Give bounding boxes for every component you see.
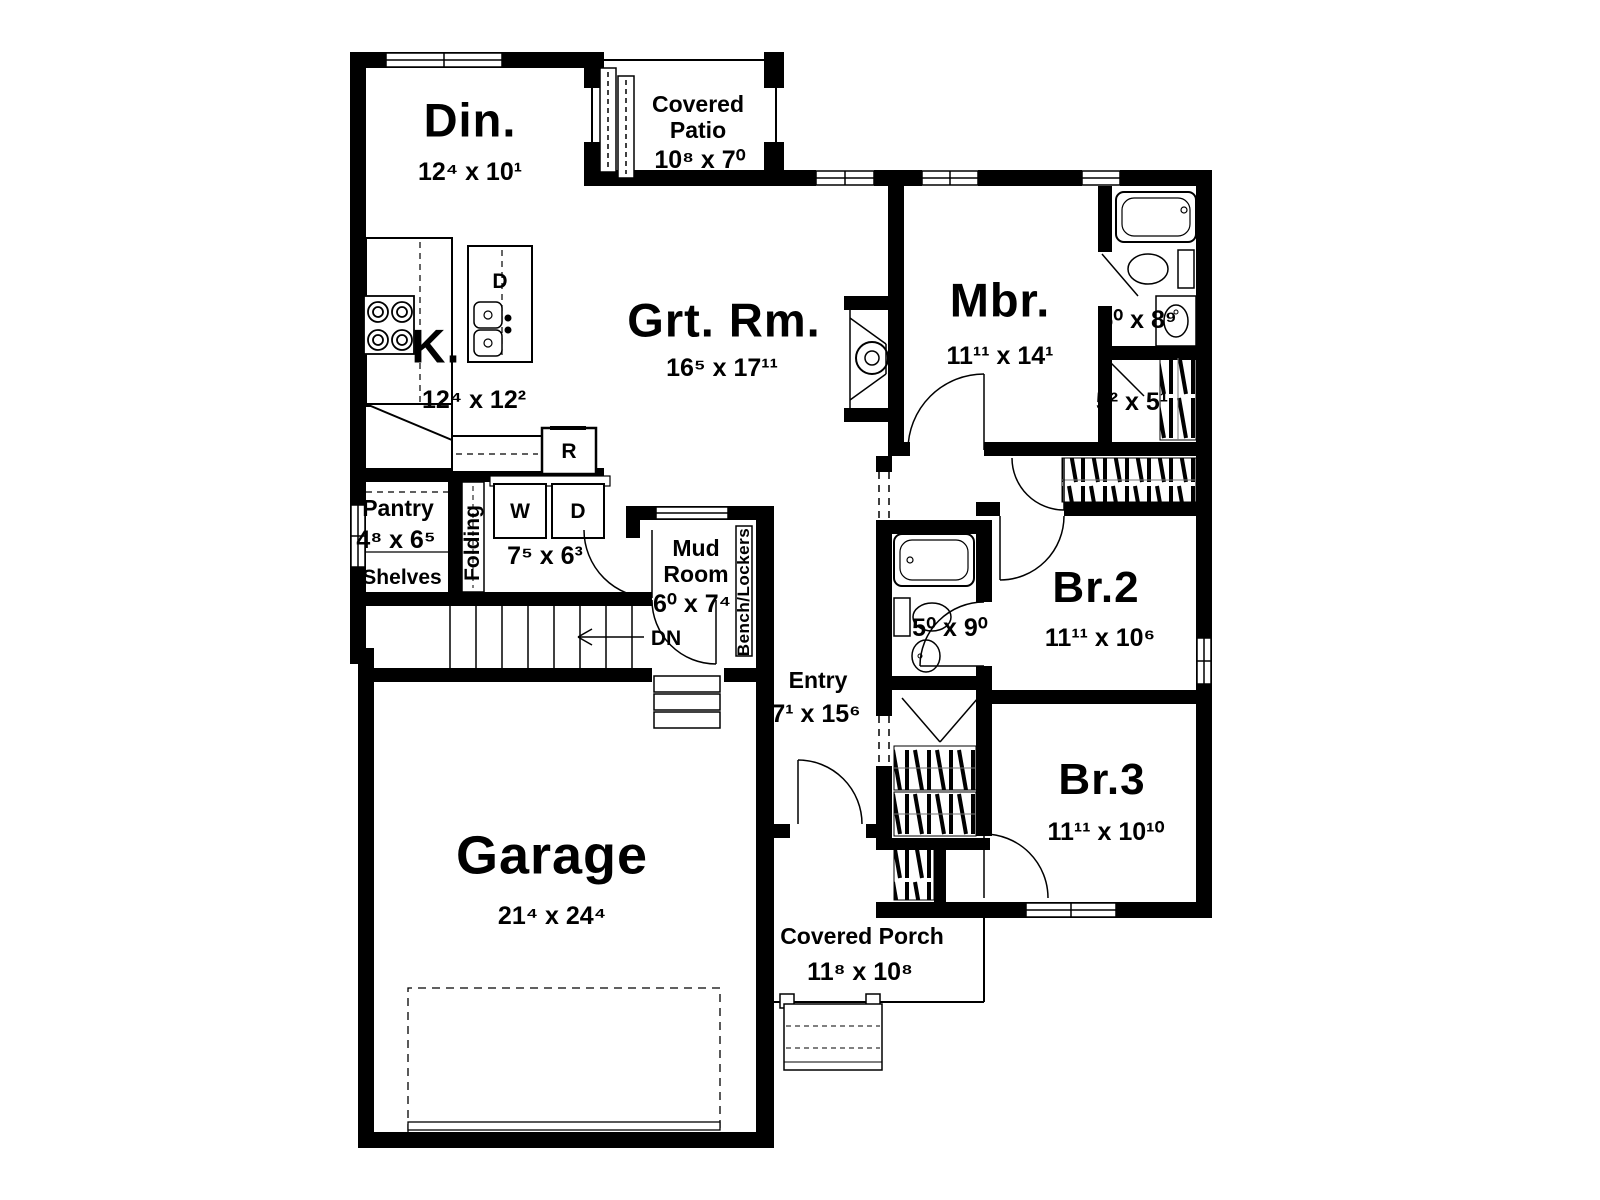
cased-opening-great-room xyxy=(879,472,889,520)
room-label-patio-line2: Patio xyxy=(670,118,726,142)
room-dims-hall-bath: 5⁰ x 9⁰ xyxy=(912,615,988,641)
room-label-patio-line1: Covered xyxy=(652,92,744,116)
room-dims-patio: 10⁸ x 7⁰ xyxy=(654,147,745,173)
patio-sliding-door xyxy=(600,68,634,178)
room-dims-master: 11¹¹ x 14¹ xyxy=(946,343,1053,369)
porch-steps xyxy=(784,1004,882,1070)
floor-plan: Din. 12⁴ x 10¹ Covered Patio 10⁸ x 7⁰ Gr… xyxy=(0,0,1600,1200)
folding-counter-label: Folding xyxy=(462,505,484,581)
room-dims-pantry: 4⁸ x 6⁵ xyxy=(356,527,435,553)
room-dims-great-room: 16⁵ x 17¹¹ xyxy=(666,355,778,381)
kitchen-counter-bottom xyxy=(452,436,542,472)
bedroom3-window xyxy=(1026,903,1116,917)
walkin-closet-door xyxy=(1012,458,1064,510)
mudroom-passthrough-window xyxy=(656,507,728,519)
room-label-mudroom-line1: Mud xyxy=(672,536,719,560)
room-dims-bedroom3: 11¹¹ x 10¹⁰ xyxy=(1047,819,1164,845)
stairs xyxy=(450,606,644,668)
garage-overhead-door xyxy=(408,988,720,1132)
stairs-down-arrow xyxy=(578,629,644,645)
stove xyxy=(364,296,414,354)
room-label-kitchen: K. xyxy=(412,321,461,370)
hall-bath-sink xyxy=(912,640,940,672)
cased-opening-entry xyxy=(879,716,889,766)
bedroom2-window xyxy=(1197,638,1211,684)
bench-lockers-label: Bench/Lockers xyxy=(735,528,753,656)
room-dims-dining: 12⁴ x 10¹ xyxy=(418,159,522,185)
room-dims-porch: 11⁸ x 10⁸ xyxy=(807,959,913,985)
garage-entry-steps xyxy=(654,676,720,728)
island-dishwasher-label: D xyxy=(492,271,507,293)
room-label-bedroom2: Br.2 xyxy=(1052,565,1139,611)
master-bath-toilet xyxy=(1128,250,1194,288)
hall-closet-double-doors xyxy=(902,698,978,742)
master-bedroom-window-1 xyxy=(922,171,978,185)
room-dims-kitchen: 12⁴ x 12² xyxy=(422,387,526,413)
master-bath-tub xyxy=(1116,192,1196,242)
room-label-great-room: Grt. Rm. xyxy=(627,295,820,344)
room-label-master: Mbr. xyxy=(950,275,1051,324)
coat-closet-rod xyxy=(894,848,934,900)
room-dims-garage: 21⁴ x 24⁴ xyxy=(498,903,606,929)
washer-label: W xyxy=(510,501,530,523)
room-label-bedroom3: Br.3 xyxy=(1058,757,1145,803)
master-bedroom-window-2 xyxy=(1082,171,1120,185)
room-dims-mudroom: 6⁰ x 7⁴ xyxy=(653,591,731,617)
mudroom-door xyxy=(584,530,652,598)
bedroom3-door xyxy=(984,834,1048,898)
room-label-mudroom-line2: Room xyxy=(663,562,728,586)
room-label-garage: Garage xyxy=(456,828,648,885)
room-dims-bedroom2: 11¹¹ x 10⁶ xyxy=(1045,625,1155,651)
hall-bath-tub xyxy=(894,534,974,586)
range-label: R xyxy=(561,441,576,463)
room-dims-laundry: 7⁵ x 6³ xyxy=(507,543,583,569)
dryer-label: D xyxy=(570,501,585,523)
room-dims-master-bath: 5⁰ x 8⁹ xyxy=(1099,307,1177,333)
room-label-pantry: Pantry xyxy=(362,496,434,520)
hall-closet-rods xyxy=(894,746,976,836)
room-label-porch: Covered Porch xyxy=(780,924,944,948)
kitchen-fixtures xyxy=(364,238,596,474)
stairs-dn-label: DN xyxy=(651,628,681,650)
master-bedroom-door xyxy=(908,374,984,450)
room-label-entry: Entry xyxy=(789,668,848,692)
hall-bath-fixtures xyxy=(894,534,974,672)
front-door xyxy=(798,760,862,824)
pantry-shelves-label: Shelves xyxy=(362,567,441,589)
back-wall-window-1 xyxy=(816,171,874,185)
room-dims-entry: 7¹ x 15⁶ xyxy=(771,701,860,727)
room-dims-master-closet: 5² x 5¹ xyxy=(1096,389,1168,415)
room-label-dining: Din. xyxy=(424,95,517,144)
kitchen-island xyxy=(468,246,532,362)
island-faucet xyxy=(506,316,511,321)
master-walkin-rod xyxy=(1062,458,1196,502)
floor-plan-linework xyxy=(0,0,1600,1200)
dining-window xyxy=(386,53,502,67)
